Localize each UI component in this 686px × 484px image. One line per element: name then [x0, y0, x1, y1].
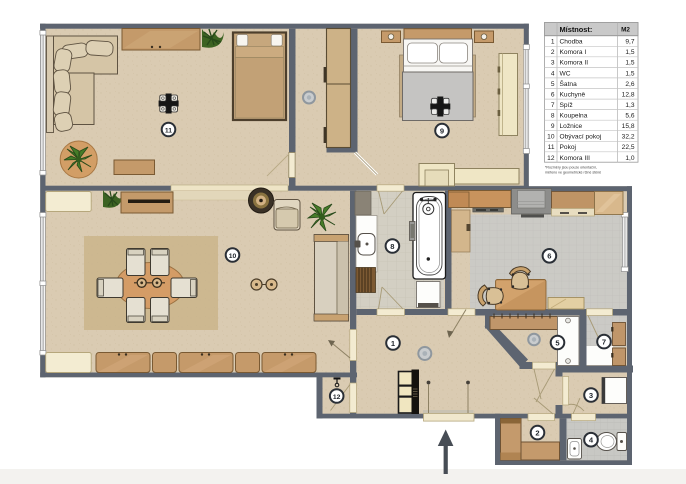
svg-text:1,5: 1,5 — [625, 49, 634, 56]
svg-text:10: 10 — [229, 253, 237, 260]
svg-text:3: 3 — [589, 391, 593, 400]
svg-text:Místnost:: Místnost: — [560, 25, 593, 34]
svg-text:5: 5 — [551, 81, 555, 88]
svg-text:12,8: 12,8 — [622, 91, 635, 98]
svg-text:15,8: 15,8 — [622, 123, 635, 130]
svg-text:Spíž: Spíž — [560, 102, 573, 109]
svg-text:2: 2 — [551, 49, 555, 56]
svg-text:Komora I: Komora I — [560, 49, 587, 56]
svg-text:8: 8 — [390, 242, 394, 251]
svg-text:Obývací pokoj: Obývací pokoj — [560, 134, 602, 141]
svg-text:Šatna: Šatna — [560, 79, 578, 88]
svg-text:*Rozměry jsou pouze orientační: *Rozměry jsou pouze orientační, — [545, 166, 597, 170]
svg-text:8: 8 — [551, 113, 555, 120]
svg-text:32,2: 32,2 — [622, 134, 635, 141]
svg-text:6: 6 — [551, 91, 555, 98]
svg-text:Chodba: Chodba — [560, 39, 583, 46]
svg-text:M2: M2 — [621, 27, 630, 34]
svg-text:1,5: 1,5 — [625, 60, 634, 67]
svg-text:1,0: 1,0 — [625, 155, 634, 162]
svg-text:2: 2 — [535, 428, 539, 437]
svg-text:WC: WC — [560, 70, 571, 77]
svg-text:Pokoj: Pokoj — [560, 144, 577, 151]
svg-text:měřeno ve geometrické rčiné st: měřeno ve geometrické rčiné stěně — [545, 171, 601, 175]
svg-text:12: 12 — [547, 155, 555, 162]
svg-text:11: 11 — [165, 127, 172, 134]
svg-text:7: 7 — [602, 337, 606, 346]
svg-text:9: 9 — [440, 126, 444, 135]
svg-text:5,6: 5,6 — [625, 113, 634, 120]
svg-text:12: 12 — [333, 394, 341, 401]
svg-text:Ložnice: Ložnice — [560, 123, 583, 130]
svg-text:9: 9 — [551, 123, 555, 130]
svg-text:Kuchyně: Kuchyně — [560, 91, 586, 98]
svg-text:2,6: 2,6 — [625, 81, 634, 88]
svg-text:6: 6 — [547, 252, 551, 261]
svg-text:1: 1 — [551, 39, 555, 46]
svg-text:Koupelna: Koupelna — [560, 113, 588, 120]
svg-text:3: 3 — [551, 60, 555, 67]
svg-text:22,5: 22,5 — [622, 144, 635, 151]
svg-text:10: 10 — [547, 134, 555, 141]
svg-text:Komora II: Komora II — [560, 60, 589, 67]
svg-text:Komora III: Komora III — [560, 155, 591, 162]
svg-text:1,5: 1,5 — [625, 70, 634, 77]
svg-text:1,3: 1,3 — [625, 102, 634, 109]
svg-text:11: 11 — [548, 144, 555, 151]
svg-text:9,7: 9,7 — [625, 39, 634, 46]
svg-text:4: 4 — [551, 70, 555, 77]
svg-text:7: 7 — [551, 102, 555, 109]
